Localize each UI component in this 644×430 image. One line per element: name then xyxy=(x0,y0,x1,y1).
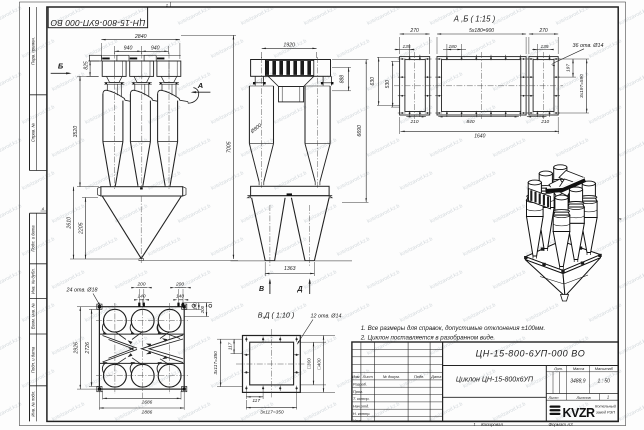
svg-text:197: 197 xyxy=(566,64,572,72)
svg-text:Пров.: Пров. xyxy=(353,389,363,394)
svg-text:А: А xyxy=(197,81,203,90)
svg-text:Копировал: Копировал xyxy=(481,422,503,427)
svg-text:2: 2 xyxy=(166,3,168,7)
svg-text:36 отв. Ø14: 36 отв. Ø14 xyxy=(573,43,604,49)
svg-text:117: 117 xyxy=(227,342,233,350)
svg-text:530: 530 xyxy=(385,80,391,89)
svg-text:Д: Д xyxy=(296,286,302,293)
svg-text:Подп. и дата: Подп. и дата xyxy=(30,225,35,252)
svg-text:Котельный: Котельный xyxy=(595,405,617,409)
svg-text:Масштаб: Масштаб xyxy=(595,366,614,371)
svg-text:200: 200 xyxy=(200,305,205,314)
svg-text:3520: 3520 xyxy=(73,126,79,138)
svg-text:□300: □300 xyxy=(307,358,313,369)
svg-text:№ докум.: № докум. xyxy=(383,374,400,379)
svg-text:200: 200 xyxy=(136,281,145,287)
svg-text:12 отв. Ø14: 12 отв. Ø14 xyxy=(311,314,342,320)
svg-text:5x180=900: 5x180=900 xyxy=(469,28,494,34)
svg-text:Взам. инв. №: Взам. инв. № xyxy=(30,303,35,329)
svg-text:Формат А3: Формат А3 xyxy=(548,422,573,427)
svg-text:140: 140 xyxy=(192,302,197,310)
svg-text:Масса: Масса xyxy=(573,366,585,371)
svg-text:Лист: Лист xyxy=(362,374,374,379)
svg-text:2205: 2205 xyxy=(79,222,85,235)
svg-text:840: 840 xyxy=(466,119,474,125)
svg-text:940: 940 xyxy=(151,45,160,51)
svg-text:135: 135 xyxy=(540,44,548,50)
svg-text:940: 940 xyxy=(124,45,133,51)
svg-text:2686: 2686 xyxy=(141,399,153,405)
svg-text:3x117=350: 3x117=350 xyxy=(213,351,219,375)
svg-text:Т. контр.: Т. контр. xyxy=(353,396,370,401)
svg-text:3x197=590: 3x197=590 xyxy=(579,74,585,98)
svg-text:Утв.: Утв. xyxy=(353,418,362,423)
svg-text:1363: 1363 xyxy=(284,266,296,272)
svg-text:ЦН-15-800-6УП-000 ВО: ЦН-15-800-6УП-000 ВО xyxy=(50,18,145,28)
svg-text:Дата: Дата xyxy=(430,374,442,379)
svg-text:Перв. примен.: Перв. примен. xyxy=(30,37,35,65)
svg-text:180: 180 xyxy=(448,44,456,50)
svg-text:1920: 1920 xyxy=(283,43,295,49)
svg-text:630: 630 xyxy=(370,77,376,86)
svg-text:Подп.: Подп. xyxy=(414,374,424,379)
svg-text:825: 825 xyxy=(83,61,89,70)
svg-text:2610: 2610 xyxy=(67,217,73,230)
svg-text:3x117=350: 3x117=350 xyxy=(260,410,284,416)
svg-text:Инв. № подл.: Инв. № подл. xyxy=(30,391,35,417)
svg-text:Инв. № дубл.: Инв. № дубл. xyxy=(30,268,35,294)
svg-text:Справ. №: Справ. № xyxy=(30,123,35,142)
svg-text:6690: 6690 xyxy=(357,125,363,137)
svg-text:24 отв. Ø18: 24 отв. Ø18 xyxy=(66,288,98,294)
svg-text:А ,Б ( 1:15 ): А ,Б ( 1:15 ) xyxy=(453,15,496,24)
svg-text:1: 1 xyxy=(607,395,609,400)
svg-text:1640: 1640 xyxy=(474,134,485,140)
svg-text:2886: 2886 xyxy=(141,409,153,415)
svg-text:KVZR: KVZR xyxy=(562,406,595,420)
svg-text:ЦН-15-800-6УП-000 ВО: ЦН-15-800-6УП-000 ВО xyxy=(476,348,586,358)
svg-text:140: 140 xyxy=(137,294,145,300)
svg-text:Листов: Листов xyxy=(576,395,591,400)
svg-text:2926: 2926 xyxy=(74,342,80,355)
svg-text:200: 200 xyxy=(175,281,184,287)
svg-text:270: 270 xyxy=(538,28,548,34)
svg-text:1 : 50: 1 : 50 xyxy=(597,379,610,385)
svg-text:Н. контр.: Н. контр. xyxy=(353,411,371,416)
svg-text:2840: 2840 xyxy=(134,34,147,40)
svg-text:2726: 2726 xyxy=(85,342,91,355)
svg-text:Лит.: Лит. xyxy=(553,366,563,371)
svg-text:В: В xyxy=(259,286,264,293)
svg-text:завод РЭП: завод РЭП xyxy=(595,411,615,415)
svg-text:210: 210 xyxy=(540,119,549,125)
svg-text:117: 117 xyxy=(252,398,260,404)
svg-text:Разраб.: Разраб. xyxy=(353,382,367,387)
svg-text:Б: Б xyxy=(58,62,64,71)
svg-text:Изм.: Изм. xyxy=(352,374,360,379)
svg-text:Подп. и дата: Подп. и дата xyxy=(30,346,35,373)
svg-text:В,Д ( 1:10 ): В,Д ( 1:10 ) xyxy=(258,311,295,320)
svg-text:Лист: Лист xyxy=(547,395,559,400)
svg-text:3488,9: 3488,9 xyxy=(570,379,586,385)
svg-text:7005: 7005 xyxy=(226,141,232,153)
svg-text:2. Циклон поставляется в разо: 2. Циклон поставляется в разобранном вид… xyxy=(360,335,495,342)
svg-text:210: 210 xyxy=(409,119,418,125)
svg-text:Нач.отд.: Нач.отд. xyxy=(353,404,369,409)
svg-text:888: 888 xyxy=(339,75,345,84)
svg-text:□400: □400 xyxy=(317,358,323,369)
svg-text:270: 270 xyxy=(409,28,419,34)
svg-text:Циклон ЦН-15-800х6УП: Циклон ЦН-15-800х6УП xyxy=(456,376,534,383)
svg-text:1. Все размеры для справок, д: 1. Все размеры для справок, допустимые о… xyxy=(361,325,546,332)
svg-text:135: 135 xyxy=(402,44,410,50)
